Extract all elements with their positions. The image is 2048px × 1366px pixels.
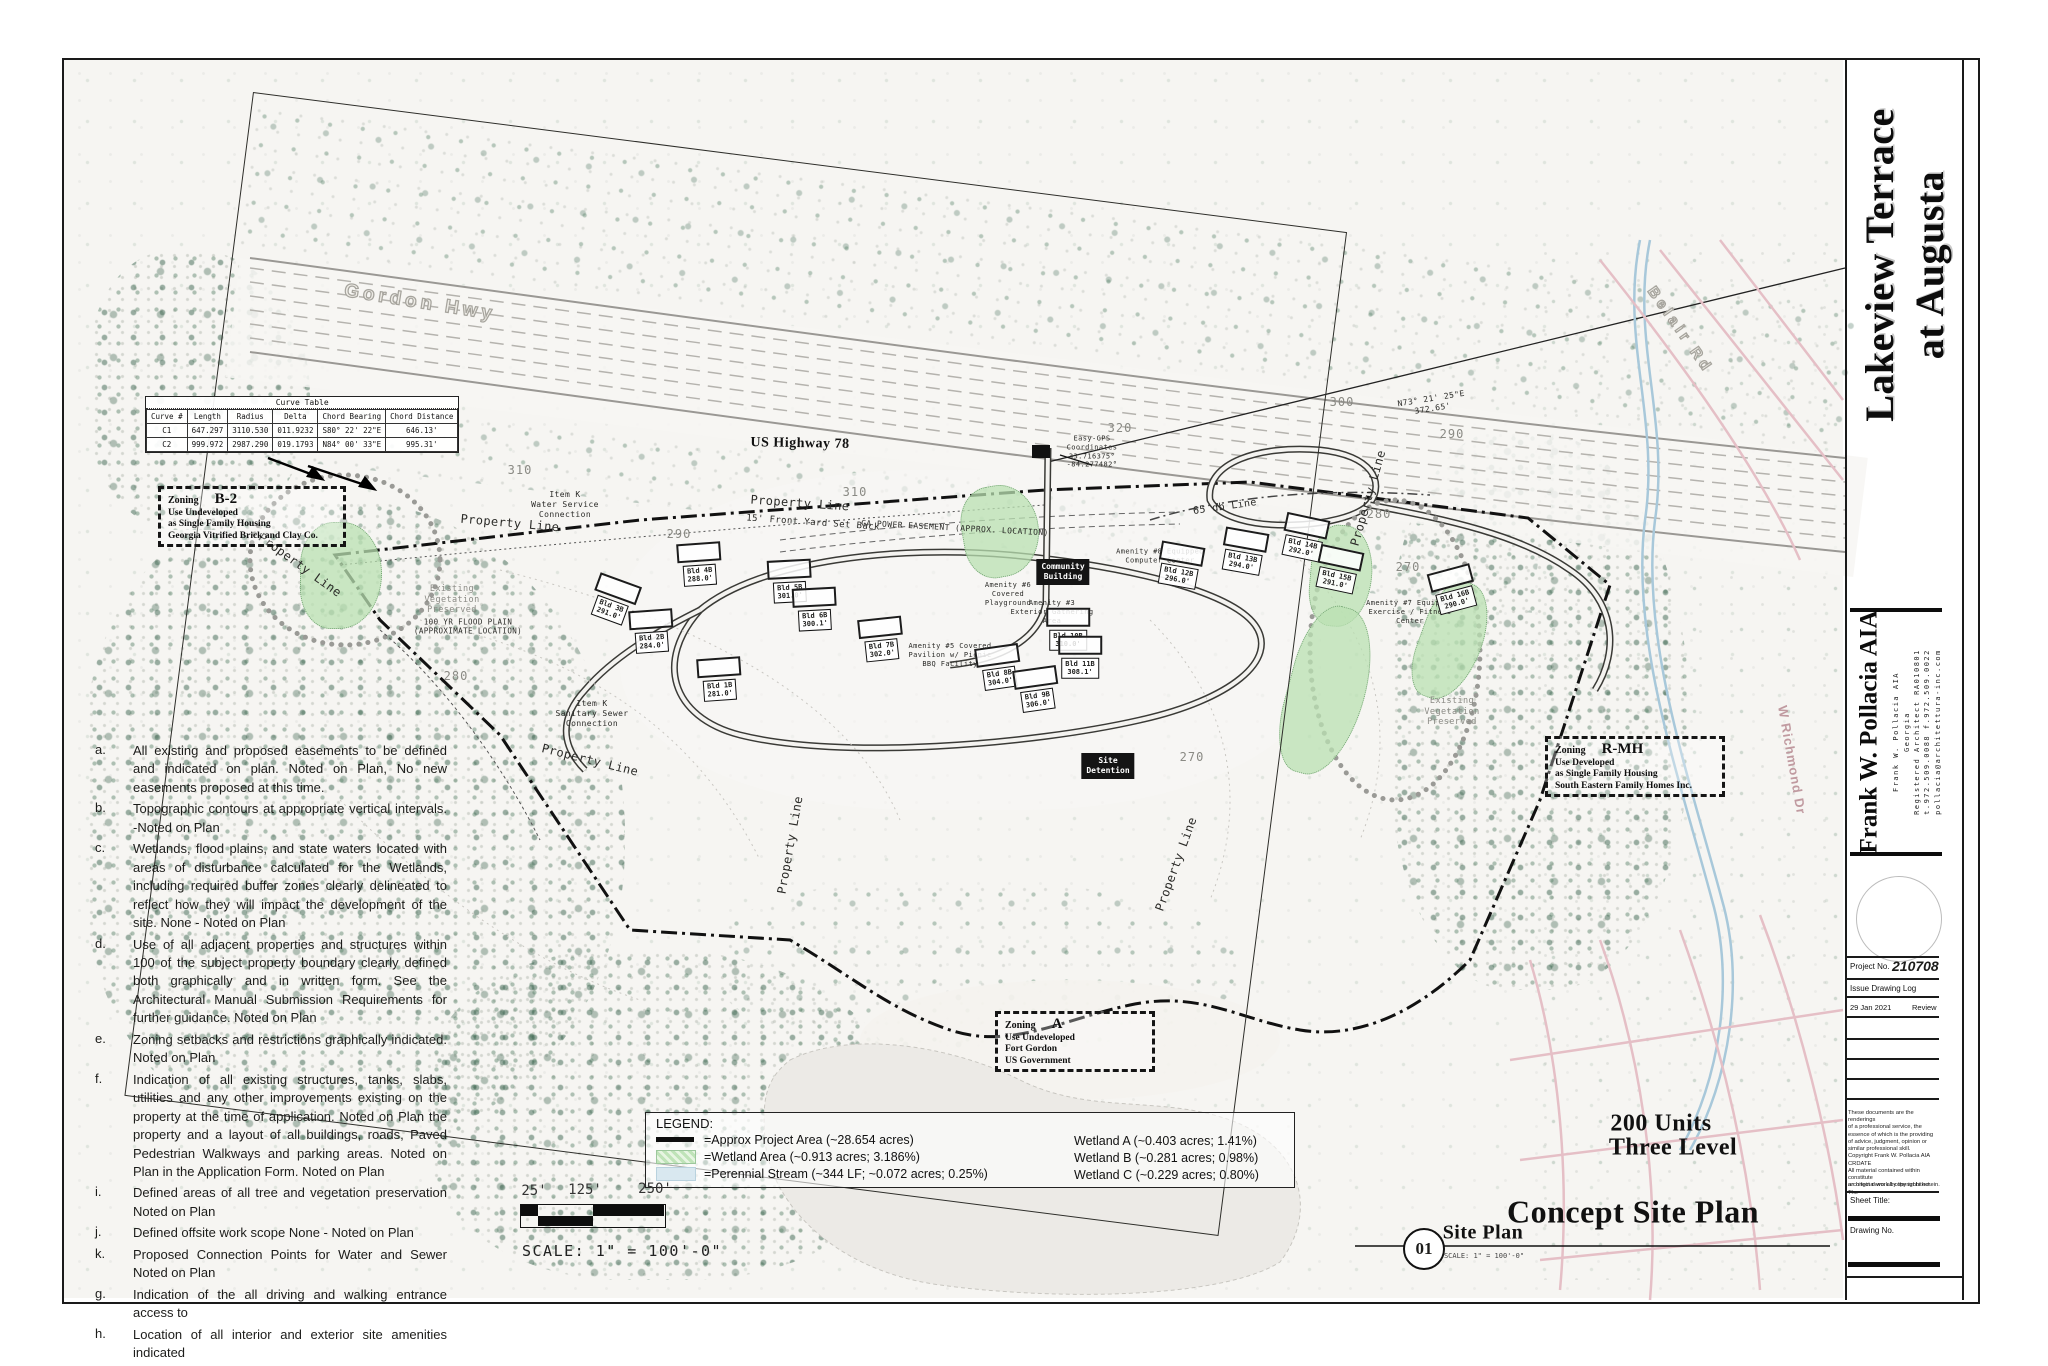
tb-rule: [1847, 1191, 1939, 1193]
architect-seal-circle: [1856, 876, 1942, 962]
issue-log-label: Issue Drawing Log: [1850, 984, 1916, 993]
disclaimer-line: similar professional skill.: [1848, 1146, 1942, 1153]
architect-contact-line: pollacia@architettura-inc.com: [1932, 612, 1943, 852]
architect-contact-line: Frank W. Pollacia AIA: [1890, 612, 1901, 852]
page-border: [62, 58, 1980, 1304]
note-item: h. Location of all interior and exterior…: [95, 1326, 447, 1363]
disclaimer-line: essence of which is the providing: [1848, 1132, 1942, 1139]
tb-rule: [1847, 1078, 1939, 1080]
note-key: h.: [95, 1326, 133, 1363]
tb-rule: [1847, 1058, 1939, 1060]
tb-thick-rule: [1848, 1262, 1940, 1267]
drawing-no-label: Drawing No.: [1850, 1226, 1894, 1235]
tb-rule: [1847, 978, 1939, 980]
tb-rule: [1847, 1098, 1939, 1100]
note-text: Location of all interior and exterior si…: [133, 1326, 447, 1363]
disclaimer-line: of advice, judgment, opinion or: [1848, 1139, 1942, 1146]
copyright-line: architect owns all copyrights herein.: [1848, 1182, 1940, 1189]
tb-thick-rule: [1848, 1216, 1940, 1221]
project-no-label: Project No.: [1850, 962, 1890, 971]
architect-rule-bottom: [1850, 852, 1942, 856]
tb-rule: [1845, 1276, 1964, 1278]
tb-rule: [1847, 1016, 1939, 1018]
issue-date: 29 Jan 2021: [1850, 1003, 1891, 1012]
disclaimer-line: These documents are the renderings: [1848, 1110, 1942, 1124]
tb-rule: [1847, 1038, 1939, 1040]
site-plan-sheet: { "page": { "project_title": "Lakeview T…: [0, 0, 2048, 1365]
project-title: Lakeview Terrace at Augusta: [1846, 92, 1964, 437]
tb-rule: [1847, 996, 1939, 998]
disclaimer-line: All material contained within constitute: [1848, 1168, 1942, 1182]
project-no-value: 210708: [1892, 958, 1939, 974]
issue-description: Review: [1912, 1003, 1937, 1012]
architect-contact-line: t.972.509.0088 f.972.509.0022: [1921, 612, 1932, 852]
sheet-title-label: Sheet Title:: [1850, 1196, 1890, 1205]
disclaimer-line: Copyright Frank W. Pollacia AIA CRDATE: [1848, 1153, 1942, 1167]
disclaimer-line: of a professional service, the: [1848, 1124, 1942, 1131]
architect-name: Frank W. Pollacia AIA: [1850, 612, 1890, 852]
